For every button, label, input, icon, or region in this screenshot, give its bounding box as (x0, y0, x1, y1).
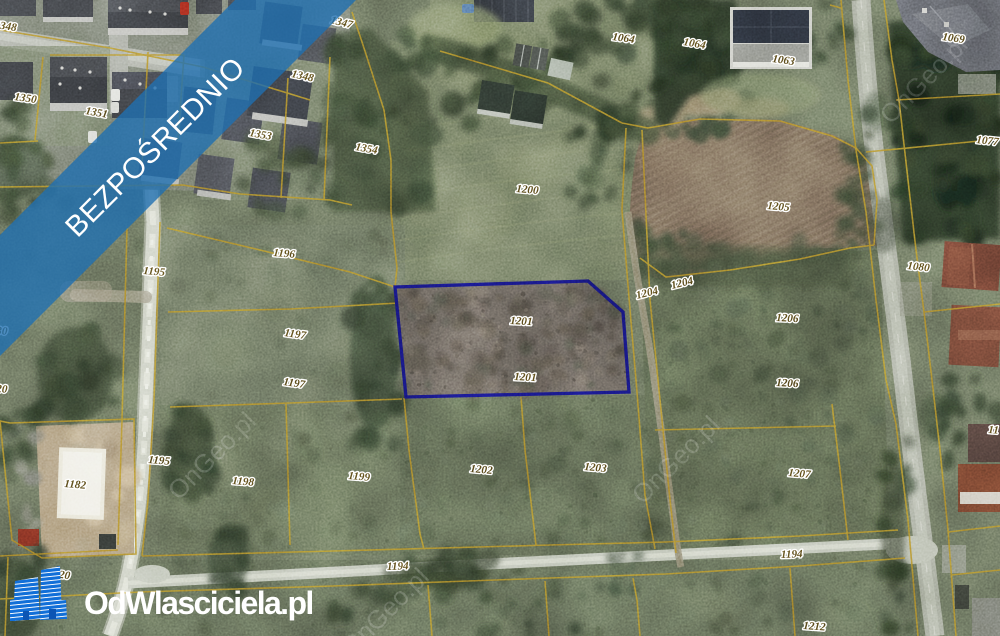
svg-text:OdWlasciciela.pl: OdWlasciciela.pl (84, 585, 313, 621)
